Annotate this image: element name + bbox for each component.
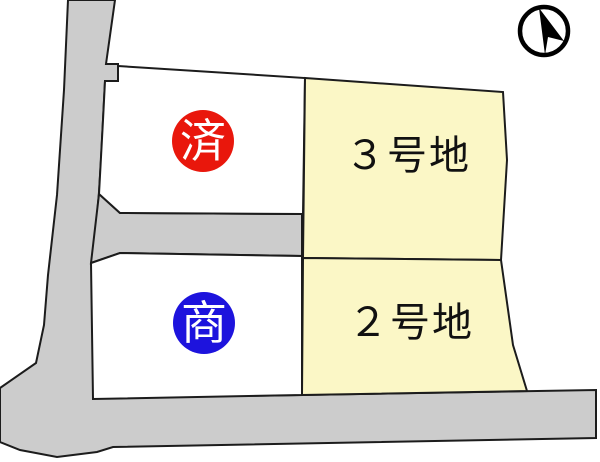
plot-map: 済 ３号地 商 ２号地 [0, 0, 600, 462]
sold-badge-label: 済 [180, 115, 226, 167]
plot-map-canvas: 済 ３号地 商 ２号地 [0, 0, 600, 462]
negotiation-badge-label: 商 [181, 297, 227, 349]
lot-2-label: ２号地 [348, 301, 474, 345]
north-arrow-icon [520, 7, 568, 55]
lot-3-label: ３号地 [345, 134, 471, 178]
